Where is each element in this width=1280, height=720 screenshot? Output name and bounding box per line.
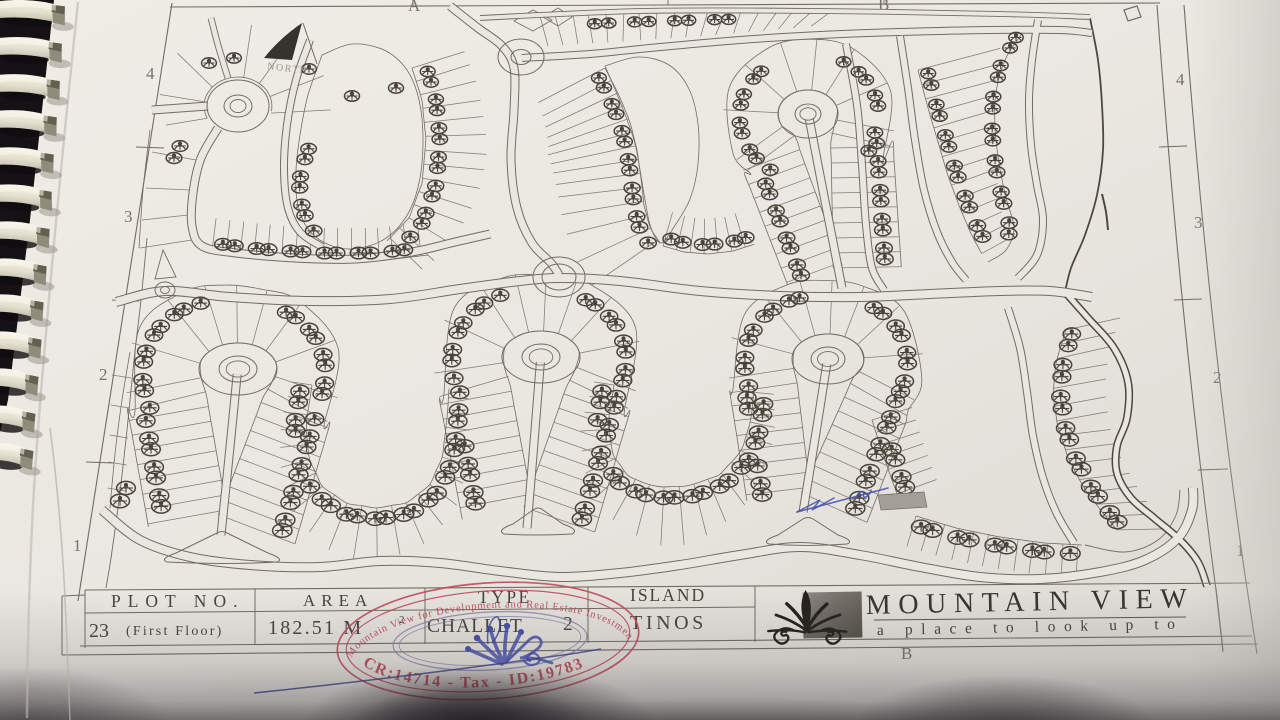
svg-text:2: 2 bbox=[99, 365, 108, 384]
svg-text:4: 4 bbox=[1176, 70, 1185, 89]
svg-text:1: 1 bbox=[73, 536, 82, 555]
svg-text:A: A bbox=[408, 0, 421, 15]
svg-text:3: 3 bbox=[124, 207, 133, 226]
svg-text:4: 4 bbox=[146, 64, 155, 83]
